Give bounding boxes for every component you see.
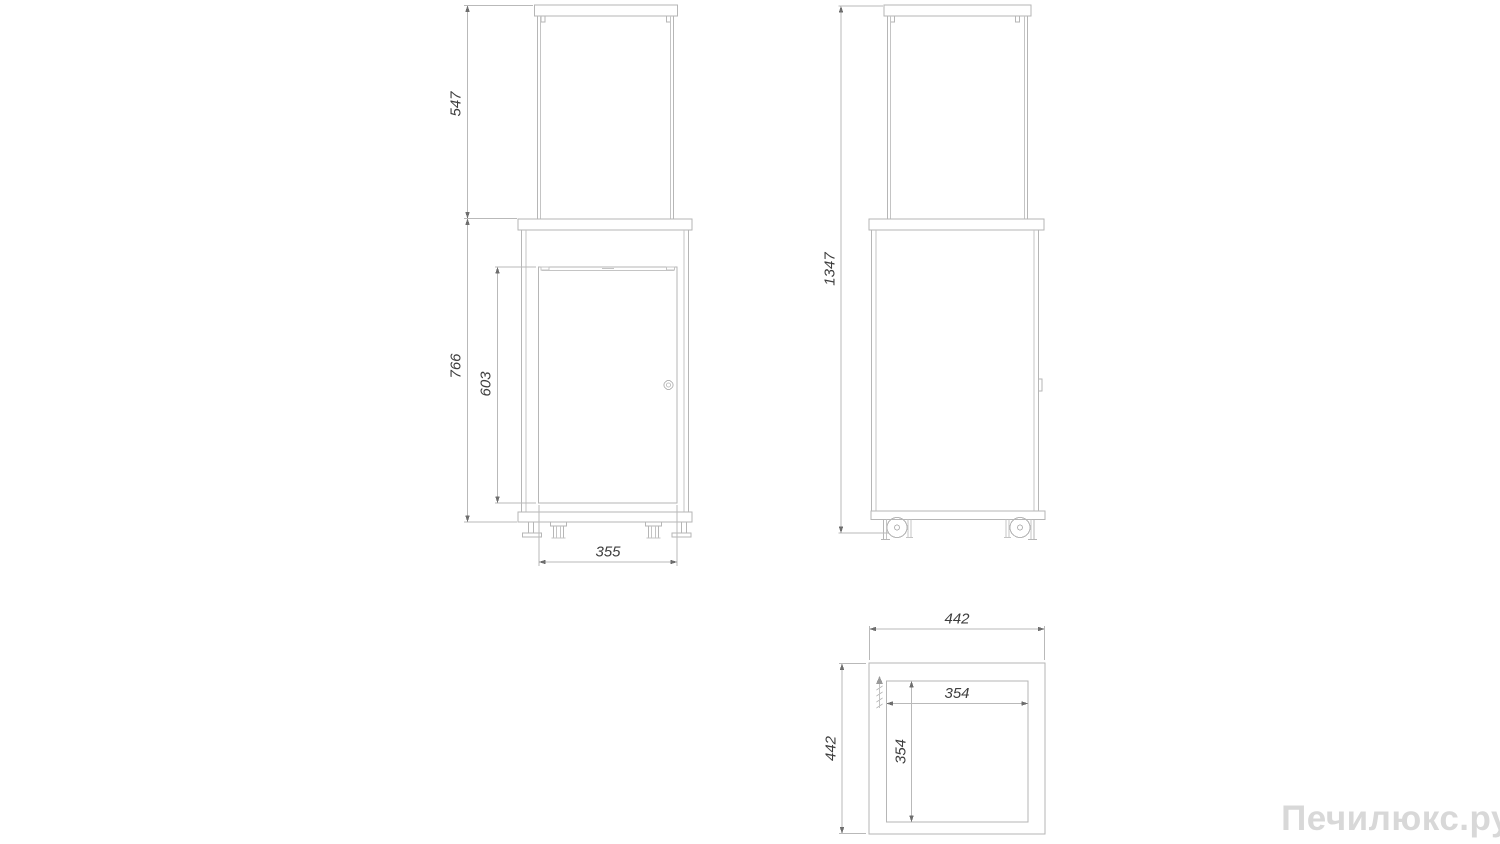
dimension-top-overall-width: 442 [870, 611, 1045, 661]
front-cabinet-body [522, 230, 689, 512]
dim-label-355: 355 [595, 544, 621, 561]
dimension-top-inner-depth: 354 [893, 681, 914, 822]
side-door-handle [1039, 379, 1043, 391]
side-cabinet-body [872, 230, 1043, 511]
side-view: 1347 [822, 5, 1046, 540]
caster-front-left [551, 522, 567, 538]
side-glass-tube [888, 16, 1028, 219]
dim-label-354-depth: 354 [893, 739, 910, 764]
door-hinge-top-right [667, 267, 675, 270]
dimension-front-body-height: 766 [448, 219, 518, 523]
corner-leader-mark [876, 676, 883, 708]
front-base-plate [518, 512, 692, 522]
side-top-plate [869, 219, 1044, 230]
top-view: 442 442 354 354 [823, 611, 1046, 835]
dimension-front-door-width: 355 [539, 505, 677, 566]
leveling-foot-right [672, 522, 691, 537]
cap-bolt-right [1016, 16, 1020, 22]
dimension-front-door-height: 603 [478, 267, 537, 503]
front-view: 547 766 603 355 [448, 5, 693, 566]
caster-side-right [1004, 518, 1037, 540]
door-hinge-top-left [541, 267, 549, 270]
caster-front-right [646, 522, 662, 538]
cap-bolt-right [667, 16, 671, 22]
dim-label-603: 603 [478, 371, 495, 397]
cap-bolt-left [541, 16, 545, 22]
dim-label-547: 547 [448, 91, 465, 117]
dim-label-442-depth: 442 [823, 735, 840, 761]
dim-label-442-width: 442 [944, 611, 970, 628]
technical-drawing: 547 766 603 355 [0, 0, 1500, 844]
door-lock-icon [664, 381, 673, 390]
dimension-top-inner-width: 354 [887, 685, 1029, 706]
dim-label-1347: 1347 [822, 252, 839, 286]
caster-side-left [881, 518, 913, 540]
side-base-plate [871, 511, 1045, 520]
dimension-top-overall-depth: 442 [823, 664, 867, 834]
front-top-plate [518, 219, 692, 230]
dim-label-766: 766 [448, 353, 465, 379]
side-top-cap [884, 5, 1031, 22]
dim-label-354-width: 354 [944, 685, 969, 702]
front-top-cap [535, 5, 678, 22]
cap-bolt-left [891, 16, 895, 22]
dimension-front-glass-height: 547 [448, 6, 534, 219]
front-door [539, 267, 678, 503]
dimension-side-overall-height: 1347 [822, 6, 889, 533]
front-glass-tube [538, 16, 674, 219]
watermark: Печилюкс.ру [1281, 799, 1500, 838]
drawing-canvas: 547 766 603 355 [0, 0, 1500, 844]
